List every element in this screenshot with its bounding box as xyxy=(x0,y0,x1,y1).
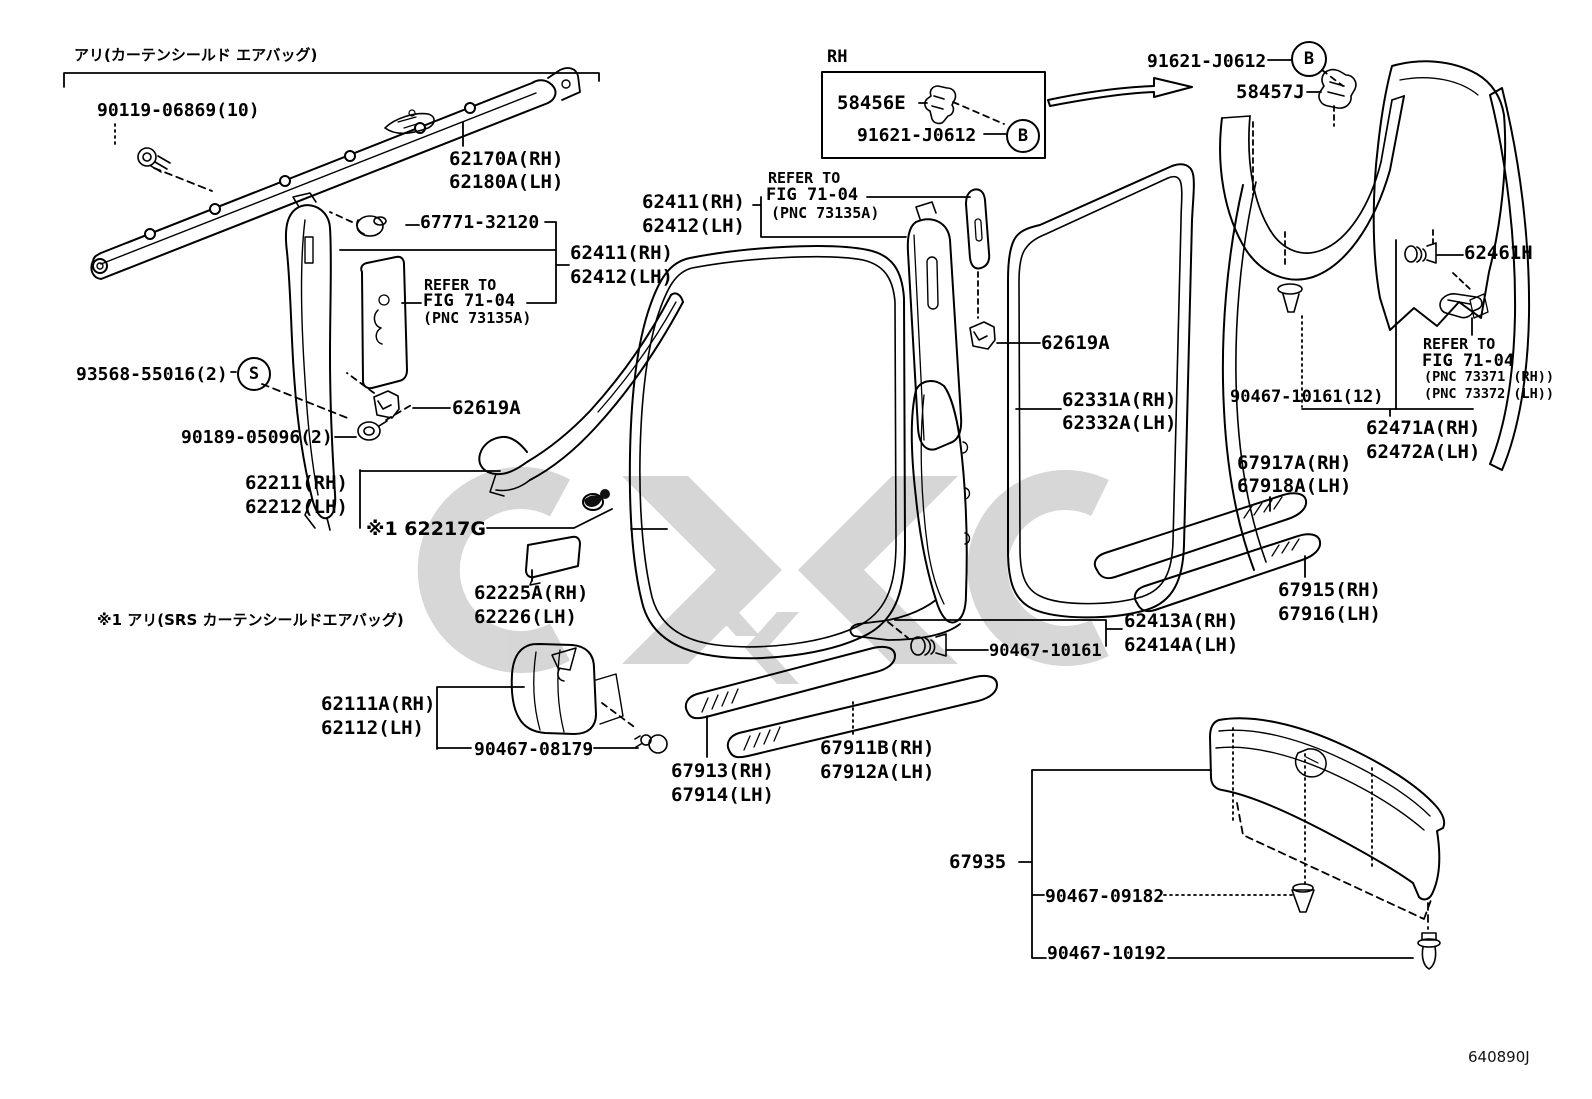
clip-icon-58457j xyxy=(1319,70,1356,109)
encircled-b-badge-topright: B xyxy=(1291,41,1327,77)
rear-panel-trim-part xyxy=(1210,718,1444,899)
part-label-62170a: 62170A(RH) xyxy=(449,148,563,170)
part-label-62111a: 62111A(RH) xyxy=(321,693,435,715)
part-label-90467-10161-12: 90467-10161(12) xyxy=(1230,387,1384,407)
part-label-93568-55016: 93568-55016(2) xyxy=(76,364,228,385)
part-label-90467-10192: 90467-10192 xyxy=(1047,943,1166,964)
encircled-s-badge: S xyxy=(237,357,271,391)
part-label-67915: 67915(RH) xyxy=(1278,579,1381,601)
drawing-code: 640890J xyxy=(1468,1048,1530,1066)
clip-icon-67771 xyxy=(357,216,386,236)
b-pillar-upper-garnish-part xyxy=(908,189,989,449)
part-label-90467-08179: 90467-08179 xyxy=(474,739,593,760)
part-label-67912a: 67912A(LH) xyxy=(820,761,934,783)
part-label-62414a: 62414A(LH) xyxy=(1124,634,1238,656)
refer-note-right-3: (PNC 73371 (RH)) xyxy=(1424,369,1554,385)
part-label-62412-center: 62412(LH) xyxy=(642,215,745,237)
funnel-clip-icon-90467-09182 xyxy=(1292,884,1314,912)
part-label-62619a-left: 62619A xyxy=(452,397,521,419)
part-label-62619a-center: 62619A xyxy=(1041,332,1110,354)
part-label-90189-05096: 90189-05096(2) xyxy=(181,427,333,448)
part-label-62211: 62211(RH) xyxy=(245,472,348,494)
part-label-62225a: 62225A(RH) xyxy=(474,582,588,604)
refer-note-left-3: (PNC 73135A) xyxy=(423,309,531,327)
refer-note-center-3: (PNC 73135A) xyxy=(771,204,879,222)
note-curtain-airbag: アリ(カーテンシールド エアバッグ) xyxy=(74,44,317,65)
rh-view-label: RH xyxy=(827,47,847,67)
note-srs-airbag: ※1 アリ(SRS カーテンシールドエアバッグ) xyxy=(97,609,404,630)
part-label-67771-32120: 67771-32120 xyxy=(420,212,539,233)
part-label-58457j: 58457J xyxy=(1236,81,1305,103)
part-label-62411-center: 62411(RH) xyxy=(642,191,745,213)
part-label-62411-left: 62411(RH) xyxy=(570,242,673,264)
part-label-62217g: ※1 62217G xyxy=(366,518,486,540)
refer-note-center-2: FIG 71-04 xyxy=(766,185,858,205)
part-label-62180a: 62180A(LH) xyxy=(449,171,563,193)
part-label-62461h: 62461H xyxy=(1464,242,1533,264)
clip-icon-62619a-center xyxy=(970,322,995,349)
part-label-67935: 67935 xyxy=(949,851,1006,873)
parts-diagram-page: アリ(カーテンシールド エアバッグ) 90119-06869(10) 62170… xyxy=(0,0,1592,1099)
push-clip-icon-90467-10192 xyxy=(1418,933,1440,969)
diagram-canvas xyxy=(0,0,1592,1099)
part-label-62472a: 62472A(LH) xyxy=(1366,441,1480,463)
refer-note-left-2: FIG 71-04 xyxy=(423,291,515,311)
refer-note-right-4: (PNC 73372 (LH)) xyxy=(1424,386,1554,402)
part-label-67917a: 67917A(RH) xyxy=(1237,452,1351,474)
part-label-62332a: 62332A(LH) xyxy=(1062,412,1176,434)
clip-icon-58456e xyxy=(925,86,956,123)
part-label-67918a: 67918A(LH) xyxy=(1237,475,1351,497)
grommet-icon-90189 xyxy=(358,421,387,440)
part-label-67916: 67916(LH) xyxy=(1278,603,1381,625)
screw-icon-90467-08179 xyxy=(635,735,667,753)
part-label-62413a: 62413A(RH) xyxy=(1124,610,1238,632)
part-label-58456e: 58456E xyxy=(837,92,906,114)
part-label-62412-left: 62412(LH) xyxy=(570,266,673,288)
part-label-67913: 67913(RH) xyxy=(671,760,774,782)
part-label-91621-box: 91621-J0612 xyxy=(857,125,976,146)
part-label-62112: 62112(LH) xyxy=(321,717,424,739)
direction-arrow-icon xyxy=(1048,78,1192,106)
part-label-62331a: 62331A(RH) xyxy=(1062,389,1176,411)
part-label-90467-09182: 90467-09182 xyxy=(1045,886,1164,907)
bolt-icon-62461h xyxy=(1405,243,1436,263)
part-label-62471a: 62471A(RH) xyxy=(1366,417,1480,439)
part-label-90119-06869: 90119-06869(10) xyxy=(97,100,260,121)
grommet-icon-62217g xyxy=(583,489,610,510)
part-label-67914: 67914(LH) xyxy=(671,784,774,806)
part-label-90467-10161: 90467-10161 xyxy=(989,641,1102,661)
part-label-62226: 62226(LH) xyxy=(474,606,577,628)
part-label-62212: 62212(LH) xyxy=(245,496,348,518)
refer-note-right-2: FIG 71-04 xyxy=(1422,351,1514,371)
part-label-67911b: 67911B(RH) xyxy=(820,737,934,759)
pushpin-icon-90467-10161-12 xyxy=(1278,284,1302,312)
part-label-91621-topright: 91621-J0612 xyxy=(1147,51,1266,72)
encircled-b-badge-box: B xyxy=(1006,119,1040,153)
